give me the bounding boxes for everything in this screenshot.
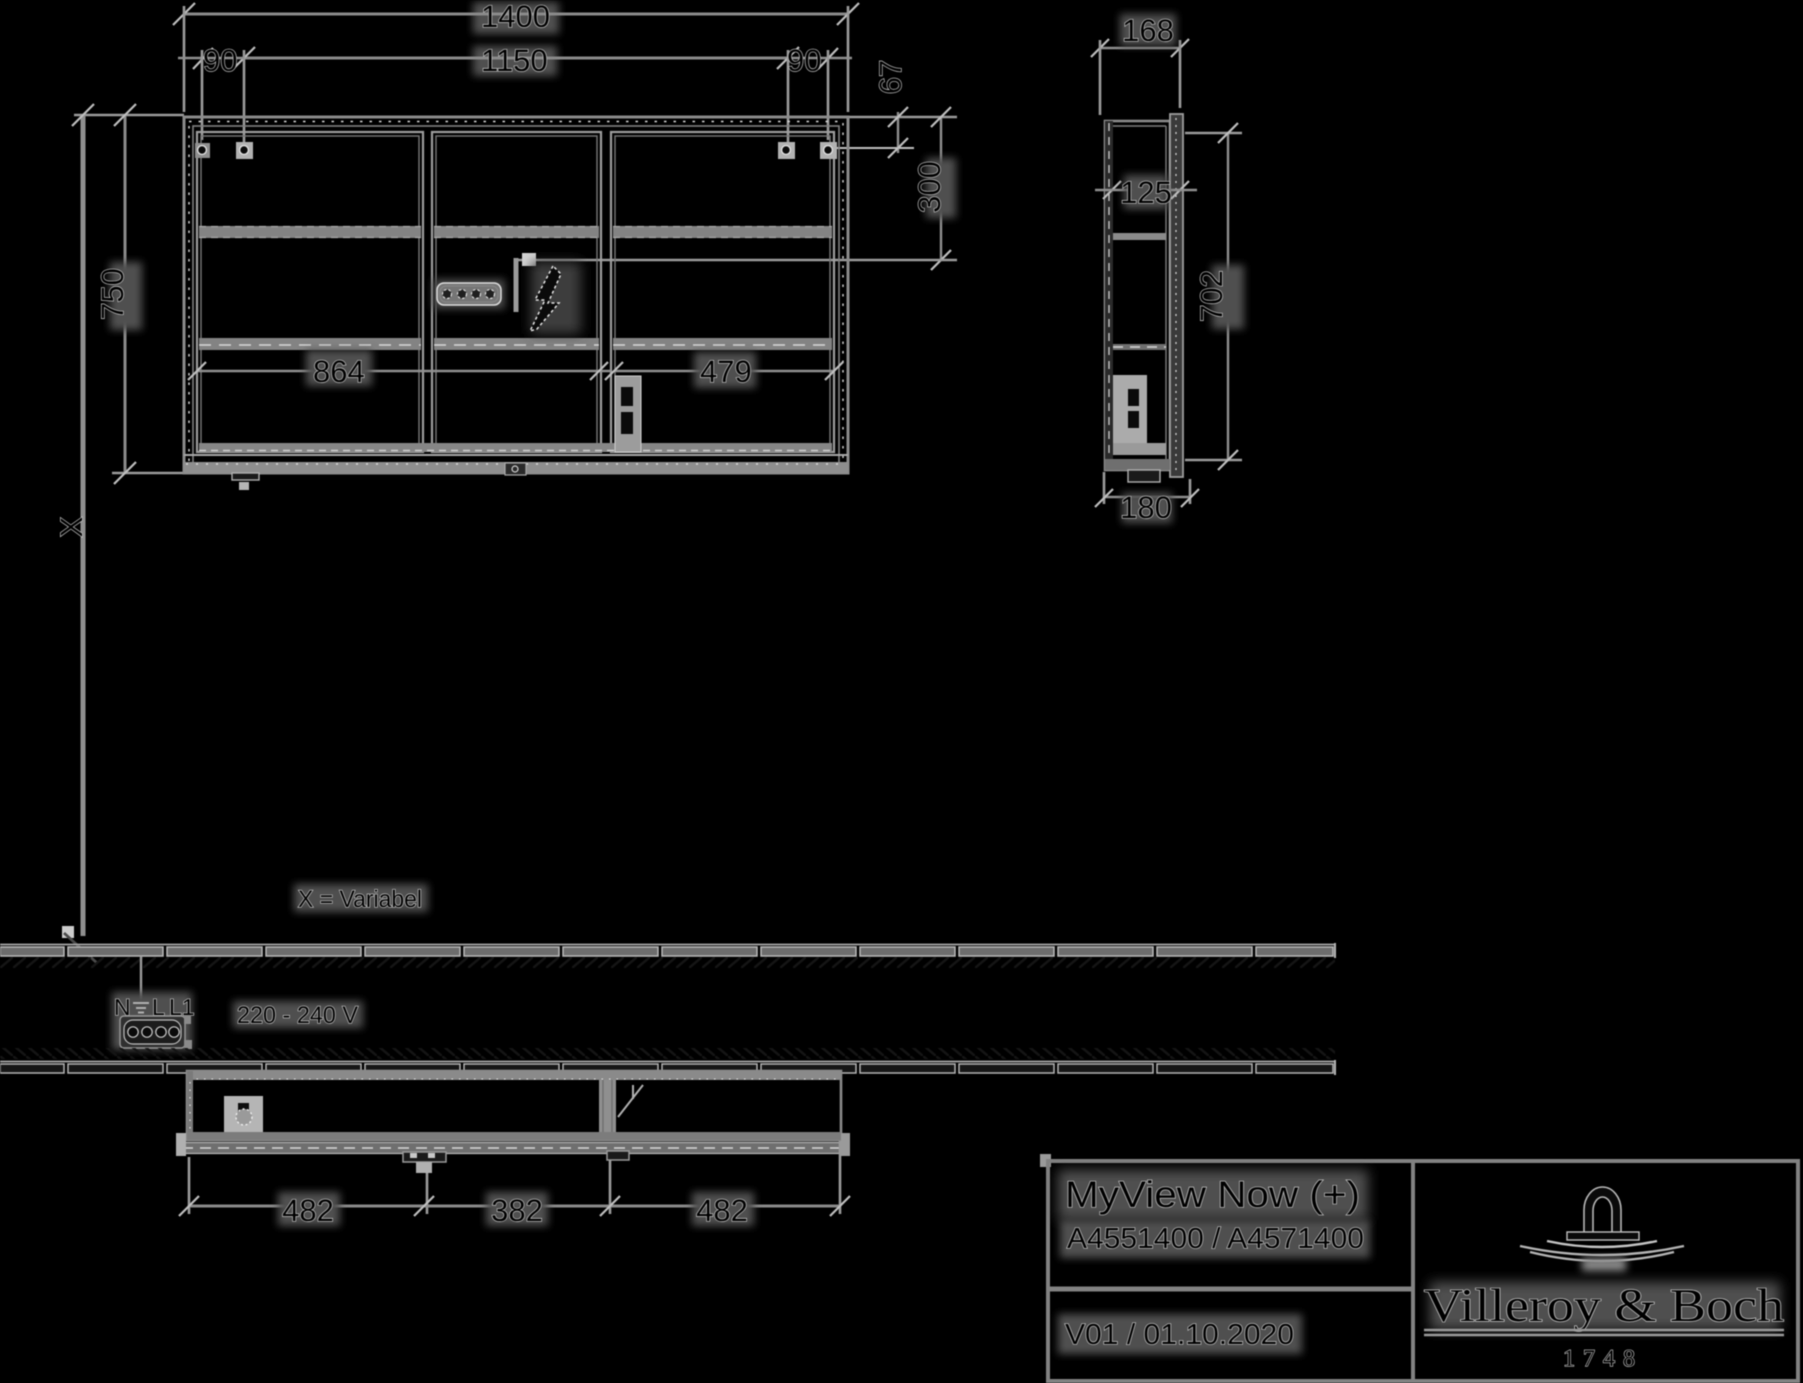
svg-text:125: 125 — [1120, 175, 1172, 210]
svg-text:482: 482 — [282, 1193, 334, 1228]
svg-text:1748: 1748 — [1563, 1346, 1643, 1372]
svg-text:1400: 1400 — [481, 0, 550, 34]
svg-text:864: 864 — [313, 354, 365, 389]
svg-text:X: X — [54, 516, 89, 537]
svg-text:180: 180 — [1120, 490, 1172, 525]
svg-text:382: 382 — [491, 1193, 543, 1228]
svg-text:300: 300 — [912, 161, 947, 213]
svg-text:V01 / 01.10.2020: V01 / 01.10.2020 — [1065, 1319, 1294, 1351]
svg-text:168: 168 — [1122, 13, 1174, 48]
svg-text:750: 750 — [95, 268, 130, 320]
svg-text:479: 479 — [700, 354, 752, 389]
svg-text:MyView Now (+): MyView Now (+) — [1065, 1174, 1360, 1215]
svg-text:220 - 240 V: 220 - 240 V — [237, 1002, 358, 1029]
svg-text:90: 90 — [203, 43, 237, 78]
svg-text:X = Variabel: X = Variabel — [298, 886, 422, 913]
svg-text:67: 67 — [873, 60, 908, 94]
svg-text:90: 90 — [787, 43, 821, 78]
svg-text:1150: 1150 — [481, 43, 548, 78]
svg-text:A4551400 / A4571400: A4551400 / A4571400 — [1067, 1223, 1364, 1255]
svg-text:Villeroy & Boch: Villeroy & Boch — [1424, 1280, 1784, 1332]
svg-text:482: 482 — [696, 1193, 748, 1228]
svg-text:702: 702 — [1194, 270, 1229, 322]
